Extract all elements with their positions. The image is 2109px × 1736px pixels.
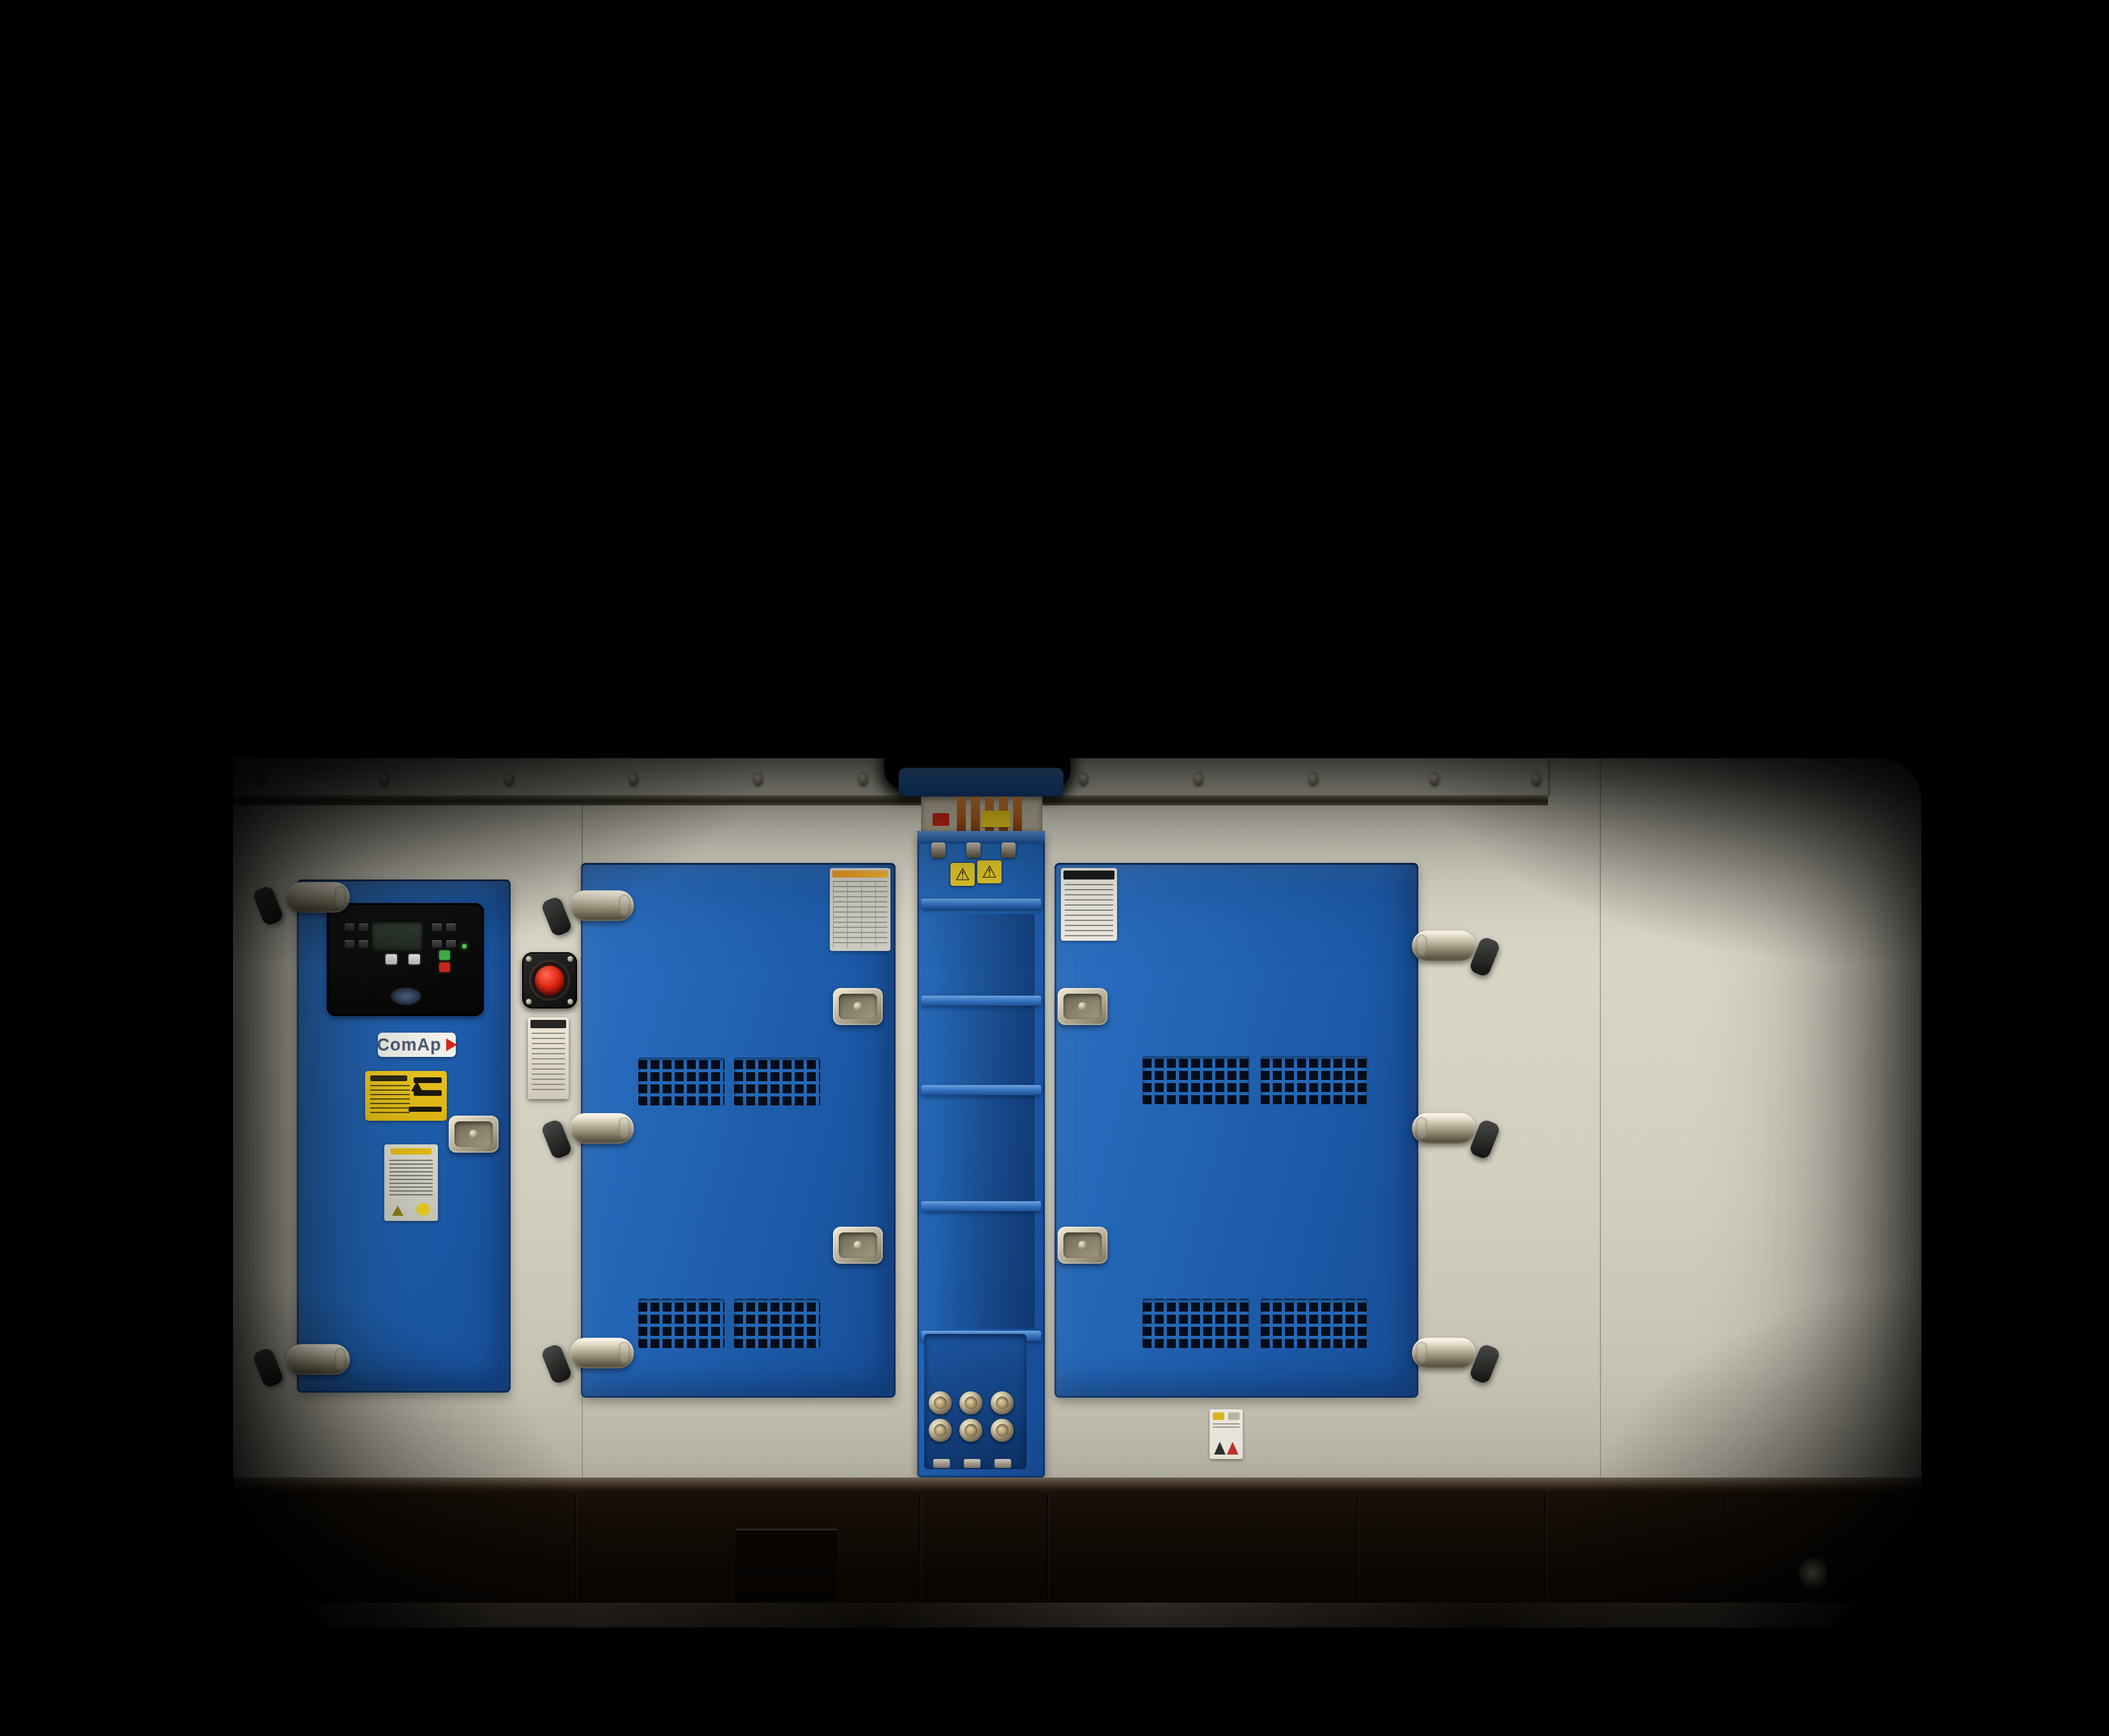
engine-door-right: [1054, 863, 1418, 1398]
hazard-pictogram: [392, 1206, 403, 1216]
terminal-stud: [931, 842, 945, 858]
housing-screw: [526, 956, 532, 962]
controller-key: [432, 940, 442, 948]
electric-hazard-sticker: ⚠: [977, 860, 1002, 883]
label-bar: [409, 1107, 442, 1112]
controller-key: [446, 940, 456, 948]
vent-grille: [734, 1299, 820, 1348]
door-hinge: [286, 1344, 350, 1375]
label-grid: [833, 881, 887, 947]
base-top-rail: [235, 1478, 1921, 1493]
controller-key: [345, 924, 354, 931]
cable-gland: [959, 1419, 982, 1442]
reflection-highlight: [1799, 1553, 1827, 1594]
controller-key: [446, 924, 456, 931]
control-door: ComAp: [297, 879, 511, 1393]
label-header: [832, 871, 888, 878]
roof-screw: [753, 772, 763, 786]
vent-grille: [1143, 1299, 1250, 1348]
label-mark: [1228, 1412, 1240, 1420]
panel-foot: [964, 1459, 980, 1468]
hazard-pictogram: [1227, 1442, 1238, 1455]
door-stop-bumper: [540, 895, 573, 938]
emergency-stop-housing: [522, 952, 577, 1008]
hazard-pictogram: [1214, 1442, 1226, 1455]
housing-screw: [526, 999, 532, 1005]
panel-foot: [933, 1459, 950, 1468]
busbar-cavity: [921, 797, 1042, 831]
door-latch: [833, 988, 883, 1025]
controller-logo-mark: [391, 987, 421, 1005]
cable-gland-panel: [924, 1334, 1026, 1469]
vent-grille: [638, 1058, 724, 1105]
roof-screw: [859, 772, 868, 786]
yellow-warning-label: [365, 1071, 447, 1121]
roof-screw: [1194, 772, 1203, 786]
roof-screw: [1532, 772, 1542, 786]
roof-screw: [255, 772, 265, 786]
label-mark: [416, 1203, 430, 1216]
vent-grille: [1261, 1299, 1368, 1348]
column-rib: [921, 996, 1041, 1006]
controller-key: [359, 940, 368, 948]
stop-button: [439, 962, 450, 972]
door-latch: [1058, 988, 1107, 1025]
busbar-column: ⚠ ⚠: [917, 831, 1045, 1478]
controller-mode-button: [409, 954, 420, 964]
panel-foot: [994, 1459, 1011, 1468]
warning-triangle-icon: ⚠: [955, 866, 970, 883]
copper-busbar: [957, 797, 966, 831]
tag-text-lines: [532, 1033, 565, 1094]
housing-screw: [567, 956, 573, 962]
spec-data-label: [830, 868, 890, 951]
door-hinge: [570, 1113, 634, 1144]
busbar-column-beam: [899, 768, 1063, 797]
copper-busbar: [1013, 797, 1022, 831]
controller-mode-button: [386, 954, 397, 964]
housing-screw: [567, 999, 573, 1005]
label-header: [1063, 871, 1115, 879]
roof-screw: [1079, 772, 1088, 786]
power-led: [462, 944, 467, 948]
roof-screw: [1309, 772, 1318, 786]
cable-gland: [929, 1419, 952, 1442]
start-button: [439, 950, 450, 960]
controller-key: [359, 924, 368, 931]
controller-window: [327, 903, 484, 1016]
cable-gland: [959, 1391, 982, 1414]
red-terminal-marker: [933, 813, 949, 826]
vent-grille: [1261, 1056, 1368, 1104]
roof-screw: [380, 772, 389, 786]
door-stop-bumper: [540, 1343, 573, 1385]
emergency-stop-button: [535, 966, 564, 995]
column-rib: [921, 899, 1041, 909]
base-skid: [235, 1478, 1921, 1627]
vent-grille: [638, 1299, 724, 1348]
label-text-lines: [389, 1160, 433, 1197]
door-latch: [449, 1116, 499, 1153]
instruction-tag: [528, 1017, 569, 1099]
door-hinge: [570, 890, 634, 921]
spec-data-label: [1061, 868, 1117, 941]
door-hinge: [1412, 931, 1476, 961]
roof-shadow-groove: [233, 795, 1548, 805]
electric-hazard-sticker: ⚠: [950, 863, 975, 886]
cable-gland: [991, 1419, 1014, 1442]
roof-screw: [629, 772, 638, 786]
label-mark: [1213, 1412, 1224, 1420]
controller-key: [432, 924, 442, 931]
generator-enclosure: ComAp: [233, 758, 1921, 1478]
column-recess: [927, 914, 1035, 1329]
roof-screw: [1430, 772, 1439, 786]
controller-lcd-screen: [372, 922, 423, 952]
door-hinge: [1412, 1113, 1476, 1144]
label-text-lines: [370, 1085, 410, 1116]
brand-label-text: ComAp: [377, 1036, 442, 1054]
label-header: [391, 1148, 432, 1155]
label-text-lines: [1065, 884, 1113, 937]
forklift-pocket: [735, 1529, 837, 1607]
brand-triangle-icon: [446, 1038, 457, 1051]
tag-header: [530, 1020, 566, 1028]
controller-key: [345, 940, 354, 948]
hazard-pictogram: [411, 1081, 423, 1091]
cable-gland: [929, 1391, 952, 1414]
white-warning-label: [384, 1144, 438, 1221]
yellow-terminal-label: [981, 811, 1010, 827]
terminal-stud: [966, 842, 980, 858]
door-latch: [1058, 1227, 1107, 1264]
label-text-lines: [1213, 1423, 1240, 1430]
door-hinge: [1412, 1338, 1476, 1368]
door-hinge: [286, 882, 350, 913]
copper-busbar: [971, 797, 980, 831]
safety-pictogram-label: [1210, 1409, 1243, 1459]
vent-grille: [1143, 1056, 1250, 1104]
door-stop-bumper: [540, 1118, 573, 1160]
column-rib: [921, 1085, 1041, 1095]
door-stop-bumper: [251, 1347, 284, 1389]
roof-screw: [504, 772, 514, 786]
cable-gland: [991, 1391, 1014, 1414]
base-bottom-highlight: [235, 1603, 1921, 1627]
panel-seam: [1599, 758, 1601, 1478]
column-shelf: [917, 831, 1045, 844]
photo-canvas: ComAp: [0, 0, 2109, 1736]
column-rib: [921, 1201, 1041, 1211]
door-stop-bumper: [251, 885, 284, 927]
warning-triangle-icon: ⚠: [982, 864, 996, 880]
brand-label: ComAp: [378, 1033, 456, 1057]
door-latch: [833, 1227, 883, 1264]
label-header: [370, 1075, 407, 1081]
door-hinge: [570, 1338, 634, 1368]
vent-grille: [734, 1058, 820, 1105]
terminal-stud: [1002, 842, 1016, 858]
